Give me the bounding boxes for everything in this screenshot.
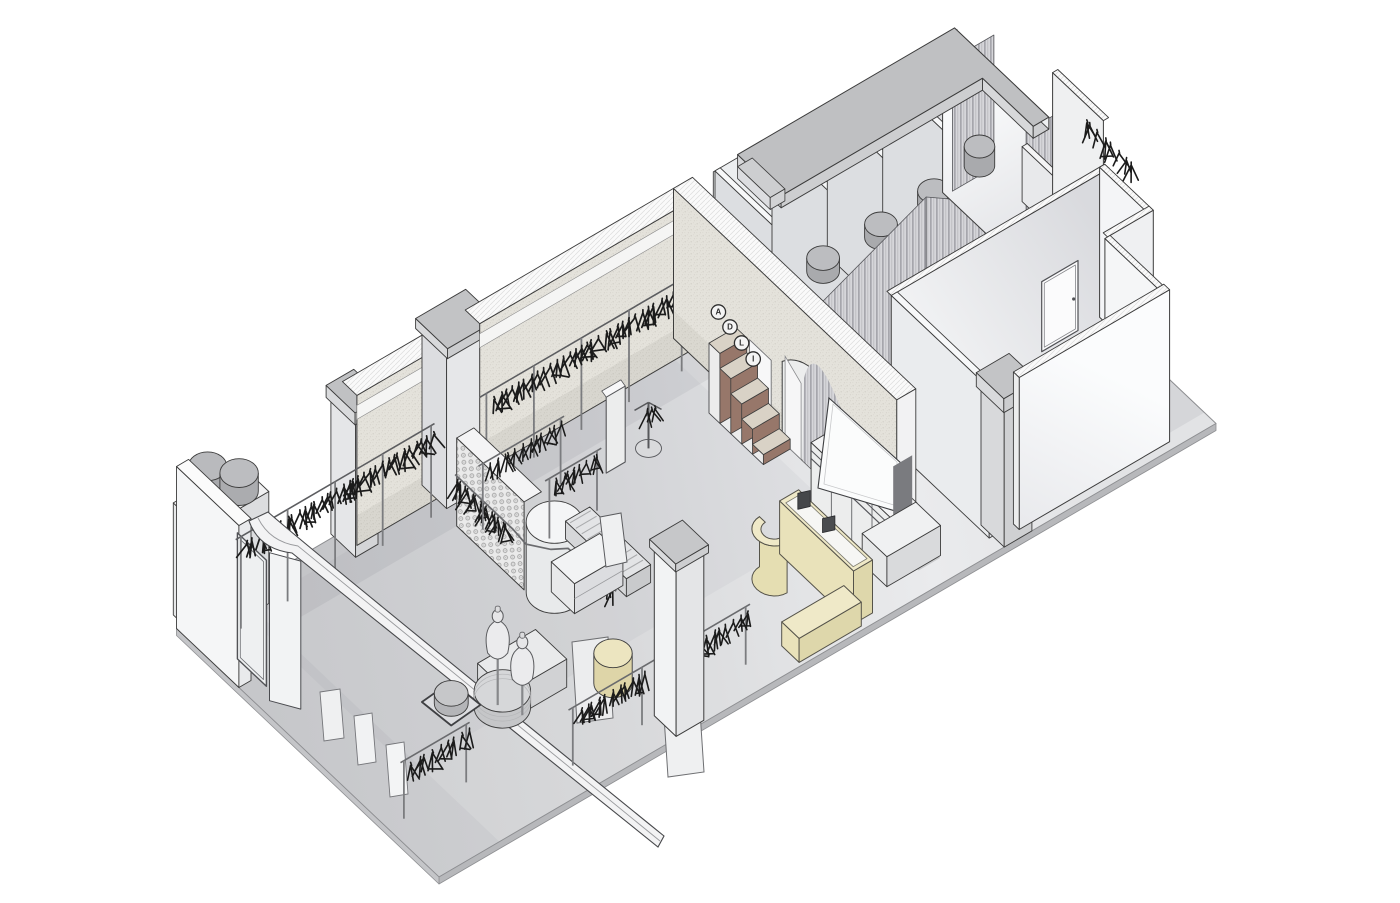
svg-text:D: D: [727, 323, 733, 332]
svg-text:L: L: [739, 339, 744, 348]
svg-text:I: I: [752, 355, 754, 364]
svg-text:A: A: [716, 308, 722, 317]
